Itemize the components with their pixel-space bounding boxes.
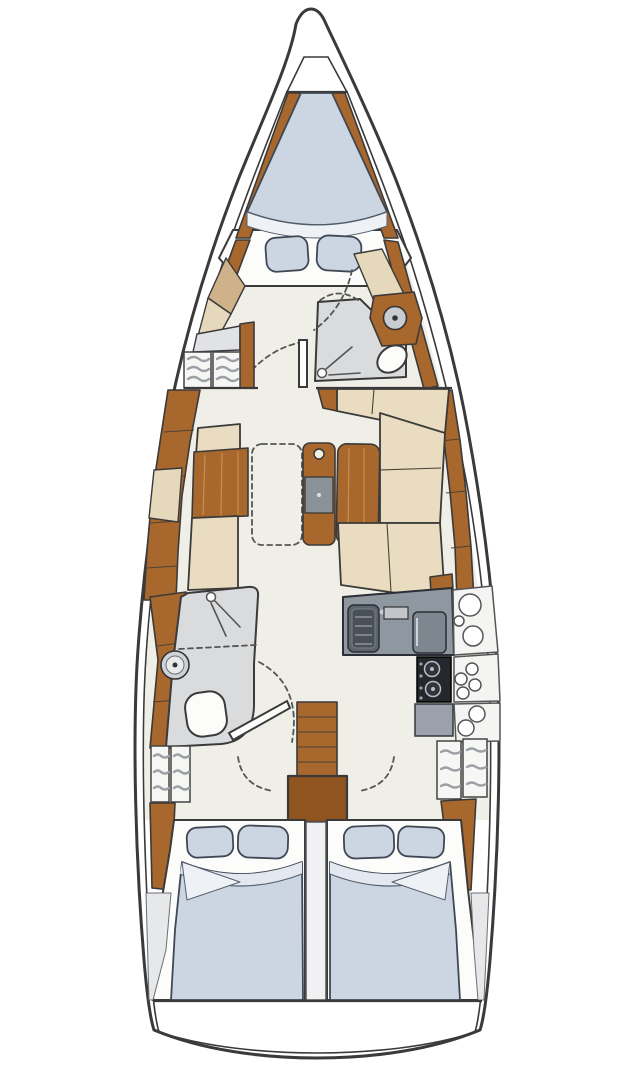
chart-table xyxy=(192,448,248,518)
pillow xyxy=(397,826,445,858)
fridge-icon xyxy=(413,612,446,653)
storage-panel xyxy=(454,654,500,702)
aft-lockers-port xyxy=(151,746,190,802)
storage-panel xyxy=(454,703,500,742)
stove-icon xyxy=(417,657,451,702)
steps-icon xyxy=(297,702,337,776)
sink-icon xyxy=(161,651,189,679)
wardrobe-frame xyxy=(240,322,254,388)
floor-plan-page xyxy=(0,0,630,1080)
shelf-cushion xyxy=(149,468,182,522)
galley-end-block xyxy=(415,704,453,736)
galley-sink-icon xyxy=(348,605,385,652)
table-cup-hole xyxy=(314,449,324,459)
cabin-divider xyxy=(306,822,326,1000)
pillow xyxy=(237,825,288,859)
toilet-icon xyxy=(183,689,229,738)
door-leaf xyxy=(299,340,307,387)
storage-panel xyxy=(453,586,498,655)
steps-base xyxy=(288,776,347,822)
aft-cabin-starboard xyxy=(327,820,481,1000)
sink-icon xyxy=(384,307,407,330)
cutting-board xyxy=(384,607,408,619)
pillow xyxy=(265,236,309,273)
pillow xyxy=(343,825,394,859)
settee-cushion xyxy=(188,516,238,590)
aft-cabin-port xyxy=(153,820,305,1000)
pillow xyxy=(186,826,234,858)
inset-knob xyxy=(317,493,321,497)
sailboat-floor-plan xyxy=(0,0,630,1080)
